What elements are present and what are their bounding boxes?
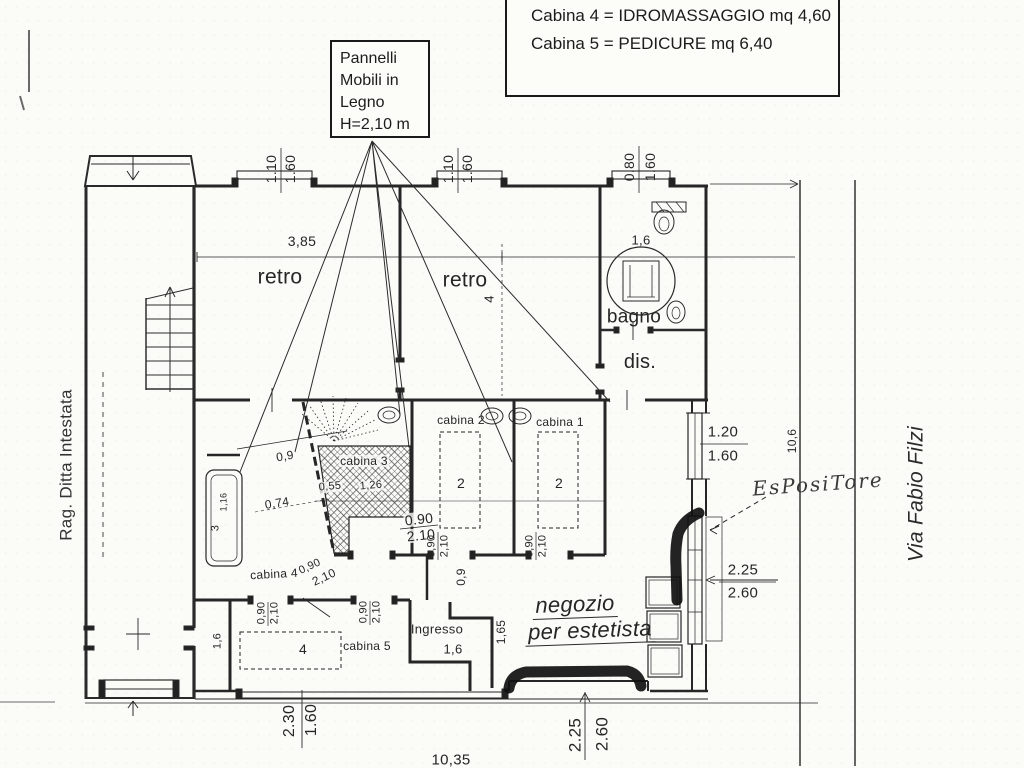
- bidet: [667, 301, 685, 323]
- left-corridor: [84, 156, 196, 716]
- dim-building-depth: 10,6: [786, 429, 798, 454]
- panels-note-line: H=2,10 m: [340, 114, 428, 136]
- legend-box: Cabina 4 = IDROMASSAGGIO mq 4,60 Cabina …: [505, 0, 840, 97]
- dim-door-cabina1-w: 0,90: [525, 535, 536, 558]
- cabina4-fixture: [206, 470, 242, 566]
- dim-cabina3-b: 1,26: [358, 479, 383, 492]
- staircase: [146, 287, 193, 392]
- dim-bottom-entry-a: 2.25: [567, 718, 584, 752]
- dim-total-width: 10,35: [431, 753, 470, 768]
- dim-right-window-a: 1.20: [708, 425, 738, 440]
- plan-linework: [0, 0, 1024, 768]
- sink-cabina1: [509, 408, 531, 424]
- floor-plan: Cabina 4 = IDROMASSAGGIO mq 4,60 Cabina …: [0, 0, 1024, 768]
- dim-door-cabina1-h: 2,10: [538, 535, 549, 558]
- room-label-ingresso: Ingresso: [411, 623, 463, 636]
- dim-cabina5-left: 1,6: [213, 633, 224, 649]
- street-label: Via Fabio Filzi: [906, 426, 927, 562]
- dim-cabina4-a: 1,16: [220, 493, 229, 512]
- dim-bottom-left-a: 2.30: [282, 705, 298, 737]
- panels-note-box: Pannelli Mobili in Legno H=2,10 m: [330, 40, 430, 138]
- bed-cabina5: [240, 632, 341, 669]
- dim-bottom-left-b: 1.60: [304, 704, 320, 736]
- dim-cabina4-diagonal: 0,74: [264, 495, 290, 511]
- shower-spray: [302, 396, 378, 441]
- room-label-retro-left: retro: [258, 267, 303, 288]
- panels-note-line: Pannelli: [340, 48, 428, 70]
- dim-cabina4-passage: 0,9: [274, 449, 295, 464]
- dim-window1-width: 1.10: [264, 155, 278, 183]
- dim-retro-width: 3,85: [288, 234, 316, 248]
- room-label-bagno: bagno: [607, 308, 661, 327]
- espositore-arrow: [710, 497, 766, 530]
- room-label-cabina2: cabina 2: [437, 414, 485, 426]
- dim-door-cabina5a-h: 2,10: [270, 602, 281, 625]
- dim-bagno: 1,6: [632, 234, 651, 247]
- dim-shopwindow-b: 2.60: [728, 586, 758, 601]
- sink-cabina3: [378, 407, 400, 423]
- dim-window3-width: 0.80: [622, 153, 636, 181]
- dim-right-window-b: 1.60: [708, 449, 738, 464]
- dim-door-cabina2-w: 0,90: [427, 535, 438, 558]
- scan-artifacts: [0, 30, 55, 702]
- dim-shopwindow-a: 2.25: [728, 563, 758, 578]
- dim-passage-165: 1,65: [495, 620, 507, 645]
- legend-line-1: Cabina 4 = IDROMASSAGGIO mq 4,60: [531, 6, 831, 26]
- dim-door-cabina5b-w: 0,90: [359, 601, 370, 624]
- dim-window2-width: 1.10: [441, 155, 455, 183]
- dim-retro-depth: 4: [483, 295, 496, 303]
- dim-cabina3-a: 0,55: [317, 480, 342, 493]
- bottom-dims: [302, 690, 590, 760]
- dim-bottom-entry-b: 2.60: [594, 717, 611, 751]
- dim-door-cabina2-h: 2,10: [440, 535, 451, 558]
- room-label-cabina3: cabina 3: [339, 455, 389, 467]
- room-label-cabina4: cabina 4: [250, 567, 298, 581]
- toilet: [654, 210, 674, 234]
- dim-door-cabina5a-w: 0,90: [257, 602, 268, 625]
- room-label-negozio-1: negozio: [532, 592, 618, 620]
- room-label-dis: dis.: [624, 352, 656, 372]
- legend-line-2: Cabina 5 = PEDICURE mq 6,40: [531, 34, 772, 54]
- bed-count-cabina5: 4: [299, 642, 307, 656]
- room-label-retro-right: retro: [443, 270, 488, 291]
- dim-window1-height: 1.60: [283, 155, 297, 183]
- room-label-negozio-2: per estetista: [525, 617, 656, 647]
- dim-door-cabina5b-h: 2,10: [372, 601, 383, 624]
- dim-window3-height: 1.60: [643, 153, 657, 181]
- display-case: [648, 645, 682, 677]
- owner-label: Rag. Ditta Intestata: [58, 389, 75, 541]
- dim-ingresso: 1,6: [444, 643, 463, 656]
- dim-cabina4-b: 3: [211, 525, 222, 531]
- panels-note-line: Mobili in: [340, 70, 428, 92]
- room-label-cabina5: cabina 5: [343, 640, 391, 652]
- dim-passage-09: 0,9: [455, 568, 467, 586]
- bed-count-cabina2: 2: [457, 476, 465, 490]
- room-label-cabina1: cabina 1: [536, 416, 584, 428]
- panels-note-line: Legno: [340, 92, 428, 114]
- dim-window2-height: 1.60: [460, 155, 474, 183]
- bed-count-cabina1: 2: [555, 476, 563, 490]
